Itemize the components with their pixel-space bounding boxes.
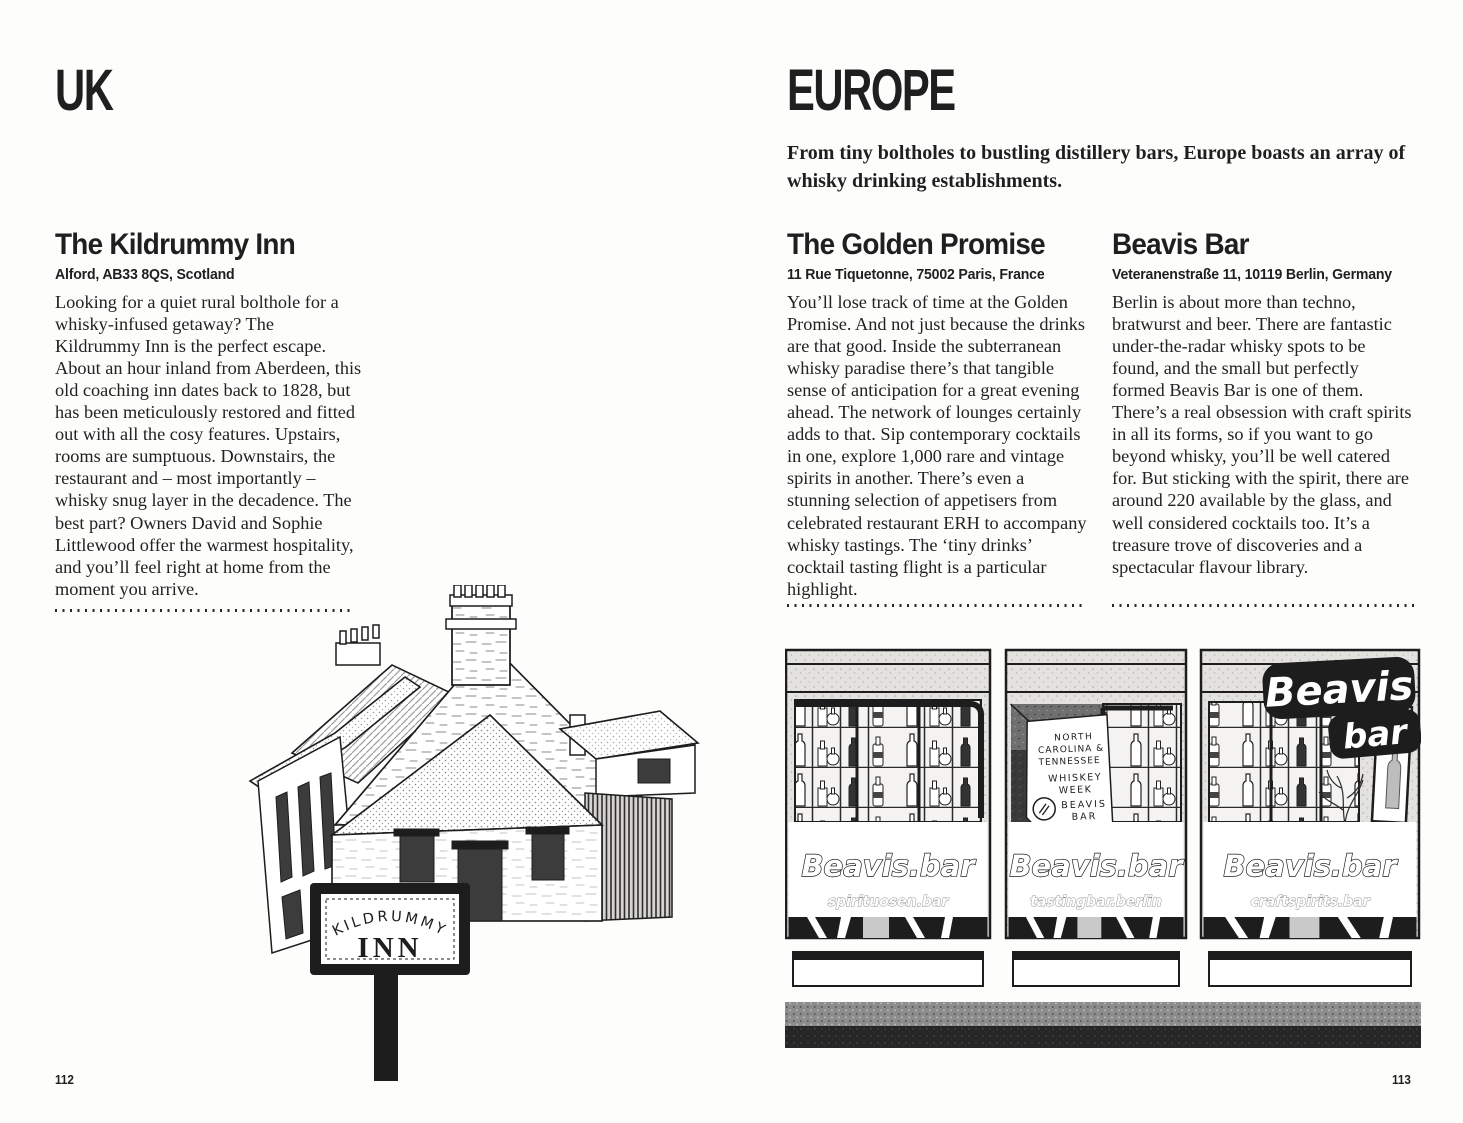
svg-text:WHISKEY: WHISKEY	[1048, 772, 1102, 785]
left-chimney-stack	[336, 625, 380, 665]
section-title-europe: EUROPE	[787, 62, 955, 120]
window-subtext: spirituosen.bar	[828, 894, 950, 910]
article-beavis-bar: Beavis Bar Veteranenstraße 11, 10119 Ber…	[1112, 230, 1416, 578]
article-body: You’ll lose track of time at the Golden …	[787, 291, 1088, 600]
article-golden-promise: The Golden Promise 11 Rue Tiquetonne, 75…	[787, 230, 1088, 600]
beavis-bar-storefront-illustration: Beavis.bar spirituosen.bar NORTH CAROLIN…	[785, 648, 1421, 1048]
section-title-uk: UK	[55, 62, 112, 120]
window-text: Beavis.bar	[801, 849, 976, 883]
dotted-separator	[1112, 604, 1414, 607]
window-text: Beavis.bar	[1223, 849, 1398, 883]
main-chimney	[446, 585, 516, 685]
article-address: Alford, AB33 8QS, Scotland	[55, 266, 345, 283]
article-title: Beavis Bar	[1112, 230, 1395, 261]
sign-logo-icon	[1033, 798, 1056, 821]
article-address: Veteranenstraße 11, 10119 Berlin, German…	[1112, 266, 1398, 283]
sign-inn-text: INN	[357, 932, 422, 964]
svg-text:bar: bar	[1341, 712, 1411, 758]
window-subtext: tastingbar.berlin	[1030, 894, 1162, 910]
planter	[1209, 952, 1411, 960]
svg-text:Beavis: Beavis	[1264, 663, 1414, 717]
inn-sign: KILDRUMMY INN	[310, 883, 470, 1081]
pavement	[785, 1002, 1421, 1048]
svg-text:BAR: BAR	[1072, 811, 1098, 823]
dotted-separator	[787, 604, 1087, 607]
article-kildrummy: The Kildrummy Inn Alford, AB33 8QS, Scot…	[55, 230, 363, 600]
window-text: Beavis.bar	[1009, 849, 1184, 883]
book-spread: UK The Kildrummy Inn Alford, AB33 8QS, S…	[0, 0, 1463, 1123]
storefront-panel-left: Beavis.bar spirituosen.bar	[786, 650, 990, 986]
storefront-panel-middle: NORTH CAROLINA & TENNESSEE WHISKEY WEEK …	[1006, 650, 1186, 986]
europe-intro: From tiny boltholes to bustling distille…	[787, 140, 1451, 195]
kildrummy-inn-illustration: KILDRUMMY INN	[240, 585, 705, 1085]
svg-text:NORTH: NORTH	[1054, 732, 1094, 743]
article-title: The Kildrummy Inn	[55, 230, 341, 261]
storefront-panel-right: Beavis bar Beavis.bar craftspirits.bar	[1201, 650, 1421, 986]
planter	[1013, 952, 1179, 960]
planter	[793, 952, 983, 960]
page-number-right: 113	[1392, 1072, 1411, 1087]
article-body: Looking for a quiet rural bolthole for a…	[55, 291, 363, 600]
article-title: The Golden Promise	[787, 230, 1067, 261]
svg-text:BEAVIS: BEAVIS	[1061, 799, 1107, 812]
article-address: 11 Rue Tiquetonne, 75002 Paris, France	[787, 266, 1070, 283]
article-body: Berlin is about more than techno, bratwu…	[1112, 291, 1416, 578]
window-subtext: craftspirits.bar	[1250, 894, 1370, 910]
svg-text:WEEK: WEEK	[1059, 784, 1093, 796]
page-number-left: 112	[55, 1072, 74, 1087]
